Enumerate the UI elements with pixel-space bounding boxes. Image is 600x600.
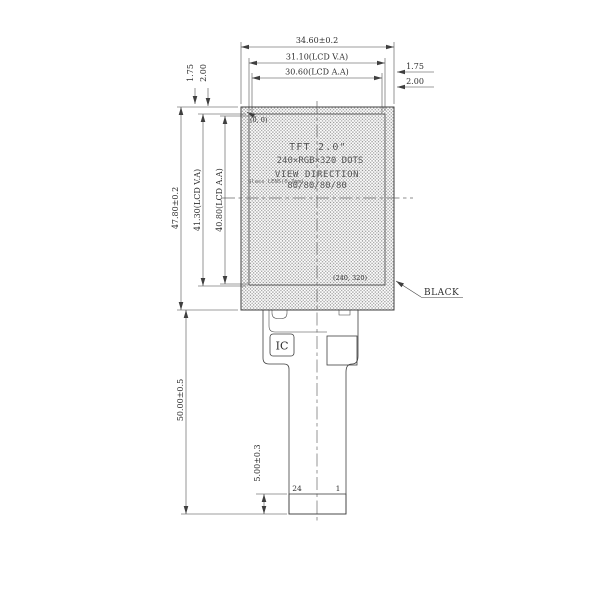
connector-contact-area bbox=[289, 494, 346, 514]
dim-top-va: 31.10(LCD V.A) bbox=[286, 53, 348, 62]
fpc-internal-line bbox=[269, 310, 327, 332]
dim-top-aa: 30.60(LCD A.A) bbox=[285, 68, 349, 77]
dim-left-aa: 40.80(LCD A.A) bbox=[215, 168, 224, 232]
lcd-black-border-frame bbox=[241, 107, 394, 310]
endpoint-label: (240, 320) bbox=[333, 274, 367, 282]
black-border-label: BLACK bbox=[424, 288, 459, 298]
dim-lefttop-1: 1.75 bbox=[186, 64, 195, 82]
origin-label: (0, 0) bbox=[250, 116, 268, 124]
lcd-outline-drawing: IC 24 1 34.60±0.2 31.10(LCD V.A) 30.60(L… bbox=[0, 0, 600, 600]
screen-line-resolution: 240×RGB×320 DOTS bbox=[277, 156, 364, 166]
ic-label: IC bbox=[276, 340, 289, 353]
dim-lefttop-2: 2.00 bbox=[199, 64, 208, 82]
dim-right-1: 1.75 bbox=[406, 62, 424, 71]
black-leader-arrow bbox=[396, 281, 421, 297]
fpc-slot-left bbox=[272, 310, 287, 319]
fpc-notch-right bbox=[339, 310, 350, 315]
dim-contact-height: 5.00±0.3 bbox=[253, 444, 262, 481]
pin-1-label: 1 bbox=[336, 484, 341, 493]
dim-left-va: 41.30(LCD V.A) bbox=[193, 169, 202, 231]
dim-fpc-length: 50.00±0.5 bbox=[176, 379, 185, 421]
hatched-component bbox=[327, 336, 357, 365]
screen-line-type: TFT 2.0" bbox=[289, 142, 347, 153]
dim-top-outer: 34.60±0.2 bbox=[296, 36, 338, 45]
drawing-svg: IC 24 1 34.60±0.2 31.10(LCD V.A) 30.60(L… bbox=[0, 0, 600, 600]
dim-left-outer: 47.80±0.2 bbox=[171, 187, 180, 229]
pin-24-label: 24 bbox=[292, 484, 302, 493]
dim-right-2: 2.00 bbox=[406, 77, 424, 86]
screen-glass-note: Glass LENS(0.7mm) bbox=[248, 179, 304, 185]
